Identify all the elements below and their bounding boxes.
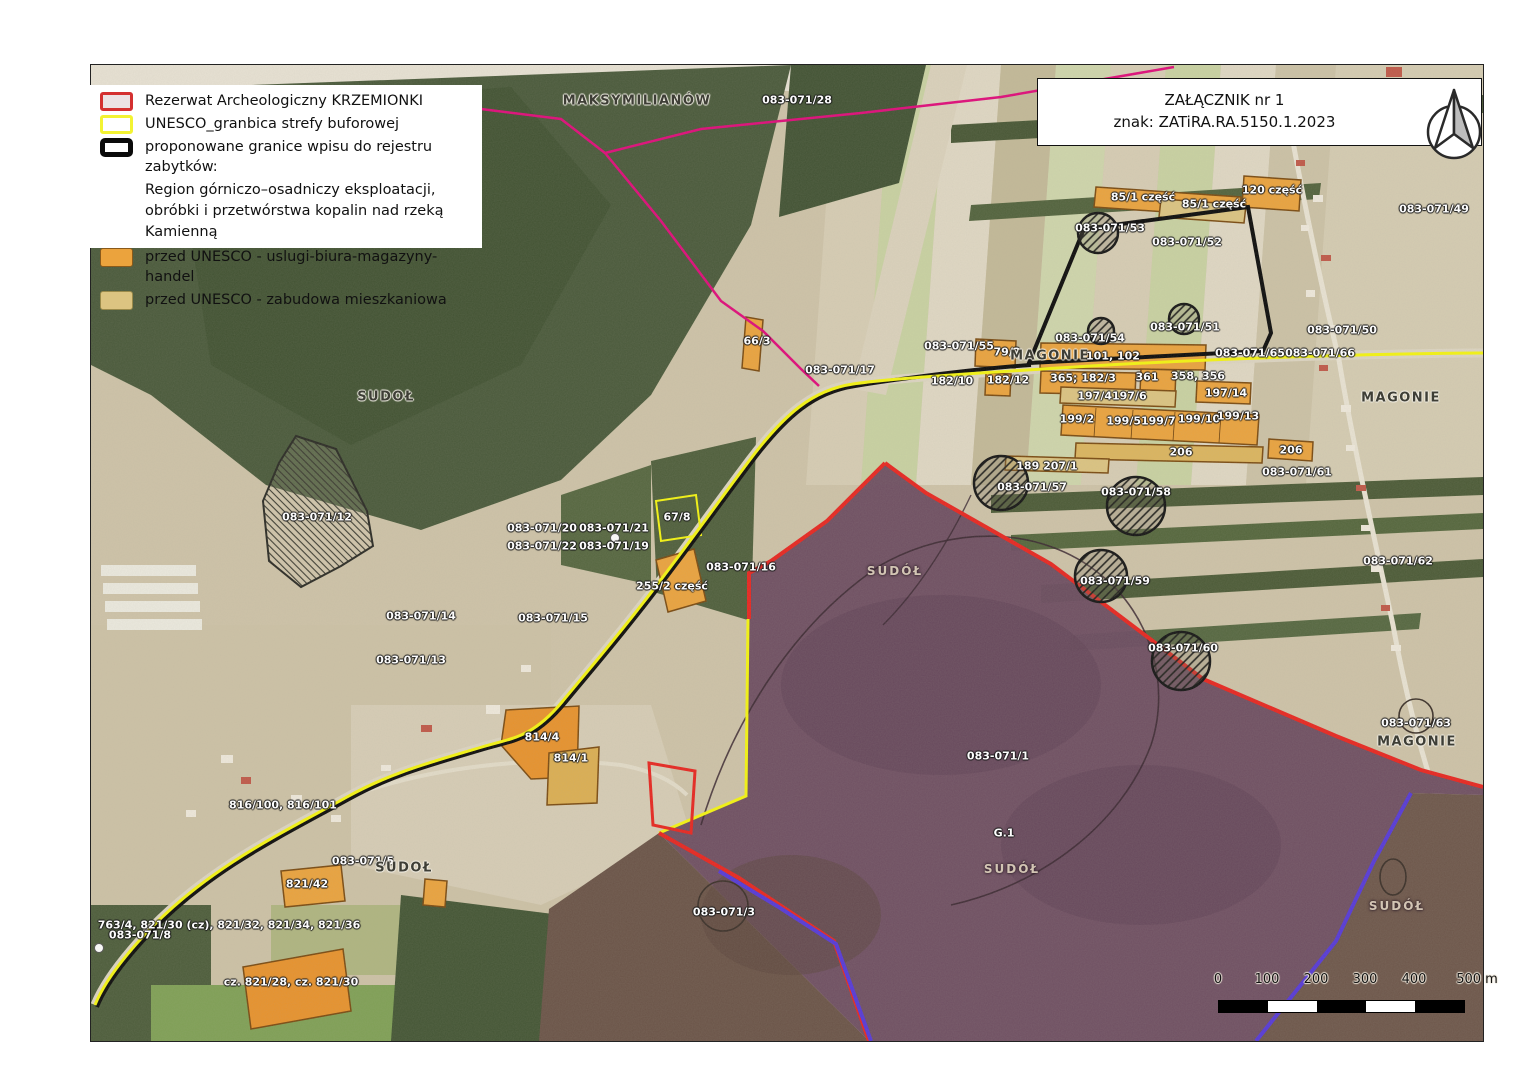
- map-label: 083-071/8: [109, 929, 171, 942]
- scale-segment: [1317, 1001, 1366, 1012]
- map-label: 365; 182/3: [1050, 372, 1116, 385]
- map-label: 083-071/28: [762, 94, 832, 107]
- map-label: 182/12: [987, 374, 1029, 387]
- map-label: 083-071/60: [1148, 642, 1218, 655]
- attachment-page: MAKSYMILIANÓW 083-071/28 85/1 część 85/1…: [0, 0, 1530, 1082]
- map-label: 816/100, 816/101: [229, 799, 337, 812]
- map-label: 083-071/20: [507, 522, 577, 535]
- map-label: 814/4: [525, 731, 560, 744]
- document-reference: znak: ZATiRA.RA.5150.1.2023: [1038, 111, 1411, 133]
- map-label: 083-071/63: [1381, 717, 1451, 730]
- legend-swatch-residential-icon: [100, 291, 133, 310]
- legend-item-proposed-boundary: proponowane granice wpisu do rejestru za…: [100, 137, 474, 177]
- map-label: 255/2 część: [636, 580, 708, 593]
- legend-label: przed UNESCO - uslugi-biura-magazyny-han…: [145, 247, 474, 287]
- map-label: 083-071/21: [579, 522, 649, 535]
- map-label: 197/14: [1205, 387, 1247, 400]
- map-label: SUDOŁ: [375, 861, 433, 876]
- map-label: 358, 356: [1171, 370, 1225, 383]
- map-label: 66/3: [744, 335, 771, 348]
- scale-tick: 200: [1304, 972, 1329, 987]
- map-label: 083-071/59: [1080, 575, 1150, 588]
- map-label: 083-071/19: [579, 540, 649, 553]
- map-label: 083-071/51: [1150, 321, 1220, 334]
- north-arrow-icon: [1422, 86, 1486, 164]
- map-label: 083-071/62: [1363, 555, 1433, 568]
- legend-item-reserve: Rezerwat Archeologiczny KRZEMIONKI: [100, 91, 474, 111]
- legend-item-services: przed UNESCO - uslugi-biura-magazyny-han…: [100, 247, 474, 287]
- map-label: 182/10: [931, 375, 973, 388]
- map-label: 083-071/14: [386, 610, 456, 623]
- map-label: 083-071/61: [1262, 466, 1332, 479]
- map-label: 814/1: [554, 752, 589, 765]
- scale-tick: 500 m: [1456, 972, 1498, 987]
- legend-swatch-services-icon: [100, 248, 133, 267]
- map-label: 361: [1136, 371, 1159, 384]
- map-label: 083-071/55: [924, 340, 994, 353]
- map-label: 083-071/52: [1152, 236, 1222, 249]
- map-label: SUDÓŁ: [1369, 899, 1425, 913]
- map-label: 083-071/66: [1285, 347, 1355, 360]
- legend-swatch-reserve-icon: [100, 92, 133, 111]
- map-label: 083-071/22: [507, 540, 577, 553]
- scale-bar-segments: [1218, 1000, 1465, 1013]
- map-label: 199/2: [1060, 413, 1095, 426]
- map-label: 821/42: [286, 878, 328, 891]
- scale-segment: [1366, 1001, 1415, 1012]
- legend-label-line3: obróbki i przetwórstwa kopalin nad rzeką…: [145, 201, 474, 243]
- map-label: 85/1 część: [1182, 198, 1246, 211]
- scale-segment: [1268, 1001, 1317, 1012]
- attachment-title: ZAŁĄCZNIK nr 1: [1038, 89, 1411, 111]
- map-label: 083-071/3: [693, 906, 755, 919]
- scale-bar: 0 100 200 300 400 500 m: [1205, 972, 1505, 1024]
- legend-label: proponowane granice wpisu do rejestru za…: [145, 137, 474, 177]
- map-label: 083-071/16: [706, 561, 776, 574]
- map-label: 206: [1280, 444, 1303, 457]
- map-label: 199/10: [1178, 413, 1220, 426]
- map-label: 85/1 część: [1111, 191, 1175, 204]
- scale-tick: 100: [1255, 972, 1280, 987]
- map-label: SUDÓŁ: [867, 564, 923, 578]
- map-label: 199/13: [1217, 410, 1259, 423]
- scale-tick: 400: [1402, 972, 1427, 987]
- legend-item-residential: przed UNESCO - zabudowa mieszkaniowa: [100, 290, 474, 310]
- map-label: 083-071/58: [1101, 486, 1171, 499]
- map-label: 197/4197/6: [1077, 390, 1146, 403]
- scale-tick: 300: [1353, 972, 1378, 987]
- map-label: SUDOŁ: [357, 390, 415, 405]
- map-label: 120 część: [1242, 184, 1302, 197]
- map-label: MAGONIE: [1010, 349, 1090, 364]
- map-label: MAGONIE: [1361, 391, 1441, 406]
- map-label: 083-071/49: [1399, 203, 1469, 216]
- title-box: ZAŁĄCZNIK nr 1 znak: ZATiRA.RA.5150.1.20…: [1037, 78, 1482, 146]
- map-label: cz. 821/28, cz. 821/30: [224, 976, 358, 989]
- map-label: 083-071/17: [805, 364, 875, 377]
- map-label: G.1: [994, 827, 1015, 840]
- map-label: 083-071/13: [376, 654, 446, 667]
- legend-label: UNESCO_granbica strefy buforowej: [145, 114, 399, 134]
- legend: Rezerwat Archeologiczny KRZEMIONKI UNESC…: [90, 85, 482, 248]
- map-label: MAGONIE: [1377, 735, 1457, 750]
- legend-swatch-proposed-icon: [100, 138, 133, 157]
- map-label: 083-071/15: [518, 612, 588, 625]
- map-label: 199/5199/7: [1106, 415, 1175, 428]
- scale-tick: 0: [1214, 972, 1222, 987]
- map-label: 206: [1170, 446, 1193, 459]
- map-label: 189 207/1: [1016, 460, 1077, 473]
- map-label: 083-071/12: [282, 511, 352, 524]
- legend-label-line2: Region górniczo–osadniczy eksploatacji,: [145, 180, 474, 201]
- map-label: 083-071/57: [997, 481, 1067, 494]
- legend-swatch-unesco-icon: [100, 115, 133, 134]
- map-label: 083-071/50: [1307, 324, 1377, 337]
- map-label: 083-071/1: [967, 750, 1029, 763]
- map-label: 101, 102: [1086, 350, 1140, 363]
- scale-segment: [1415, 1001, 1464, 1012]
- map-label: 083-071/54: [1055, 332, 1125, 345]
- legend-label: przed UNESCO - zabudowa mieszkaniowa: [145, 290, 447, 310]
- map-label: 083-071/53: [1075, 222, 1145, 235]
- map-label: MAKSYMILIANÓW: [563, 94, 712, 109]
- map-label: SUDÓŁ: [984, 862, 1040, 876]
- scale-segment: [1219, 1001, 1268, 1012]
- legend-label: Rezerwat Archeologiczny KRZEMIONKI: [145, 91, 423, 111]
- map-label: 083-071/65: [1215, 347, 1285, 360]
- legend-item-unesco-buffer: UNESCO_granbica strefy buforowej: [100, 114, 474, 134]
- map-label: 67/8: [664, 511, 691, 524]
